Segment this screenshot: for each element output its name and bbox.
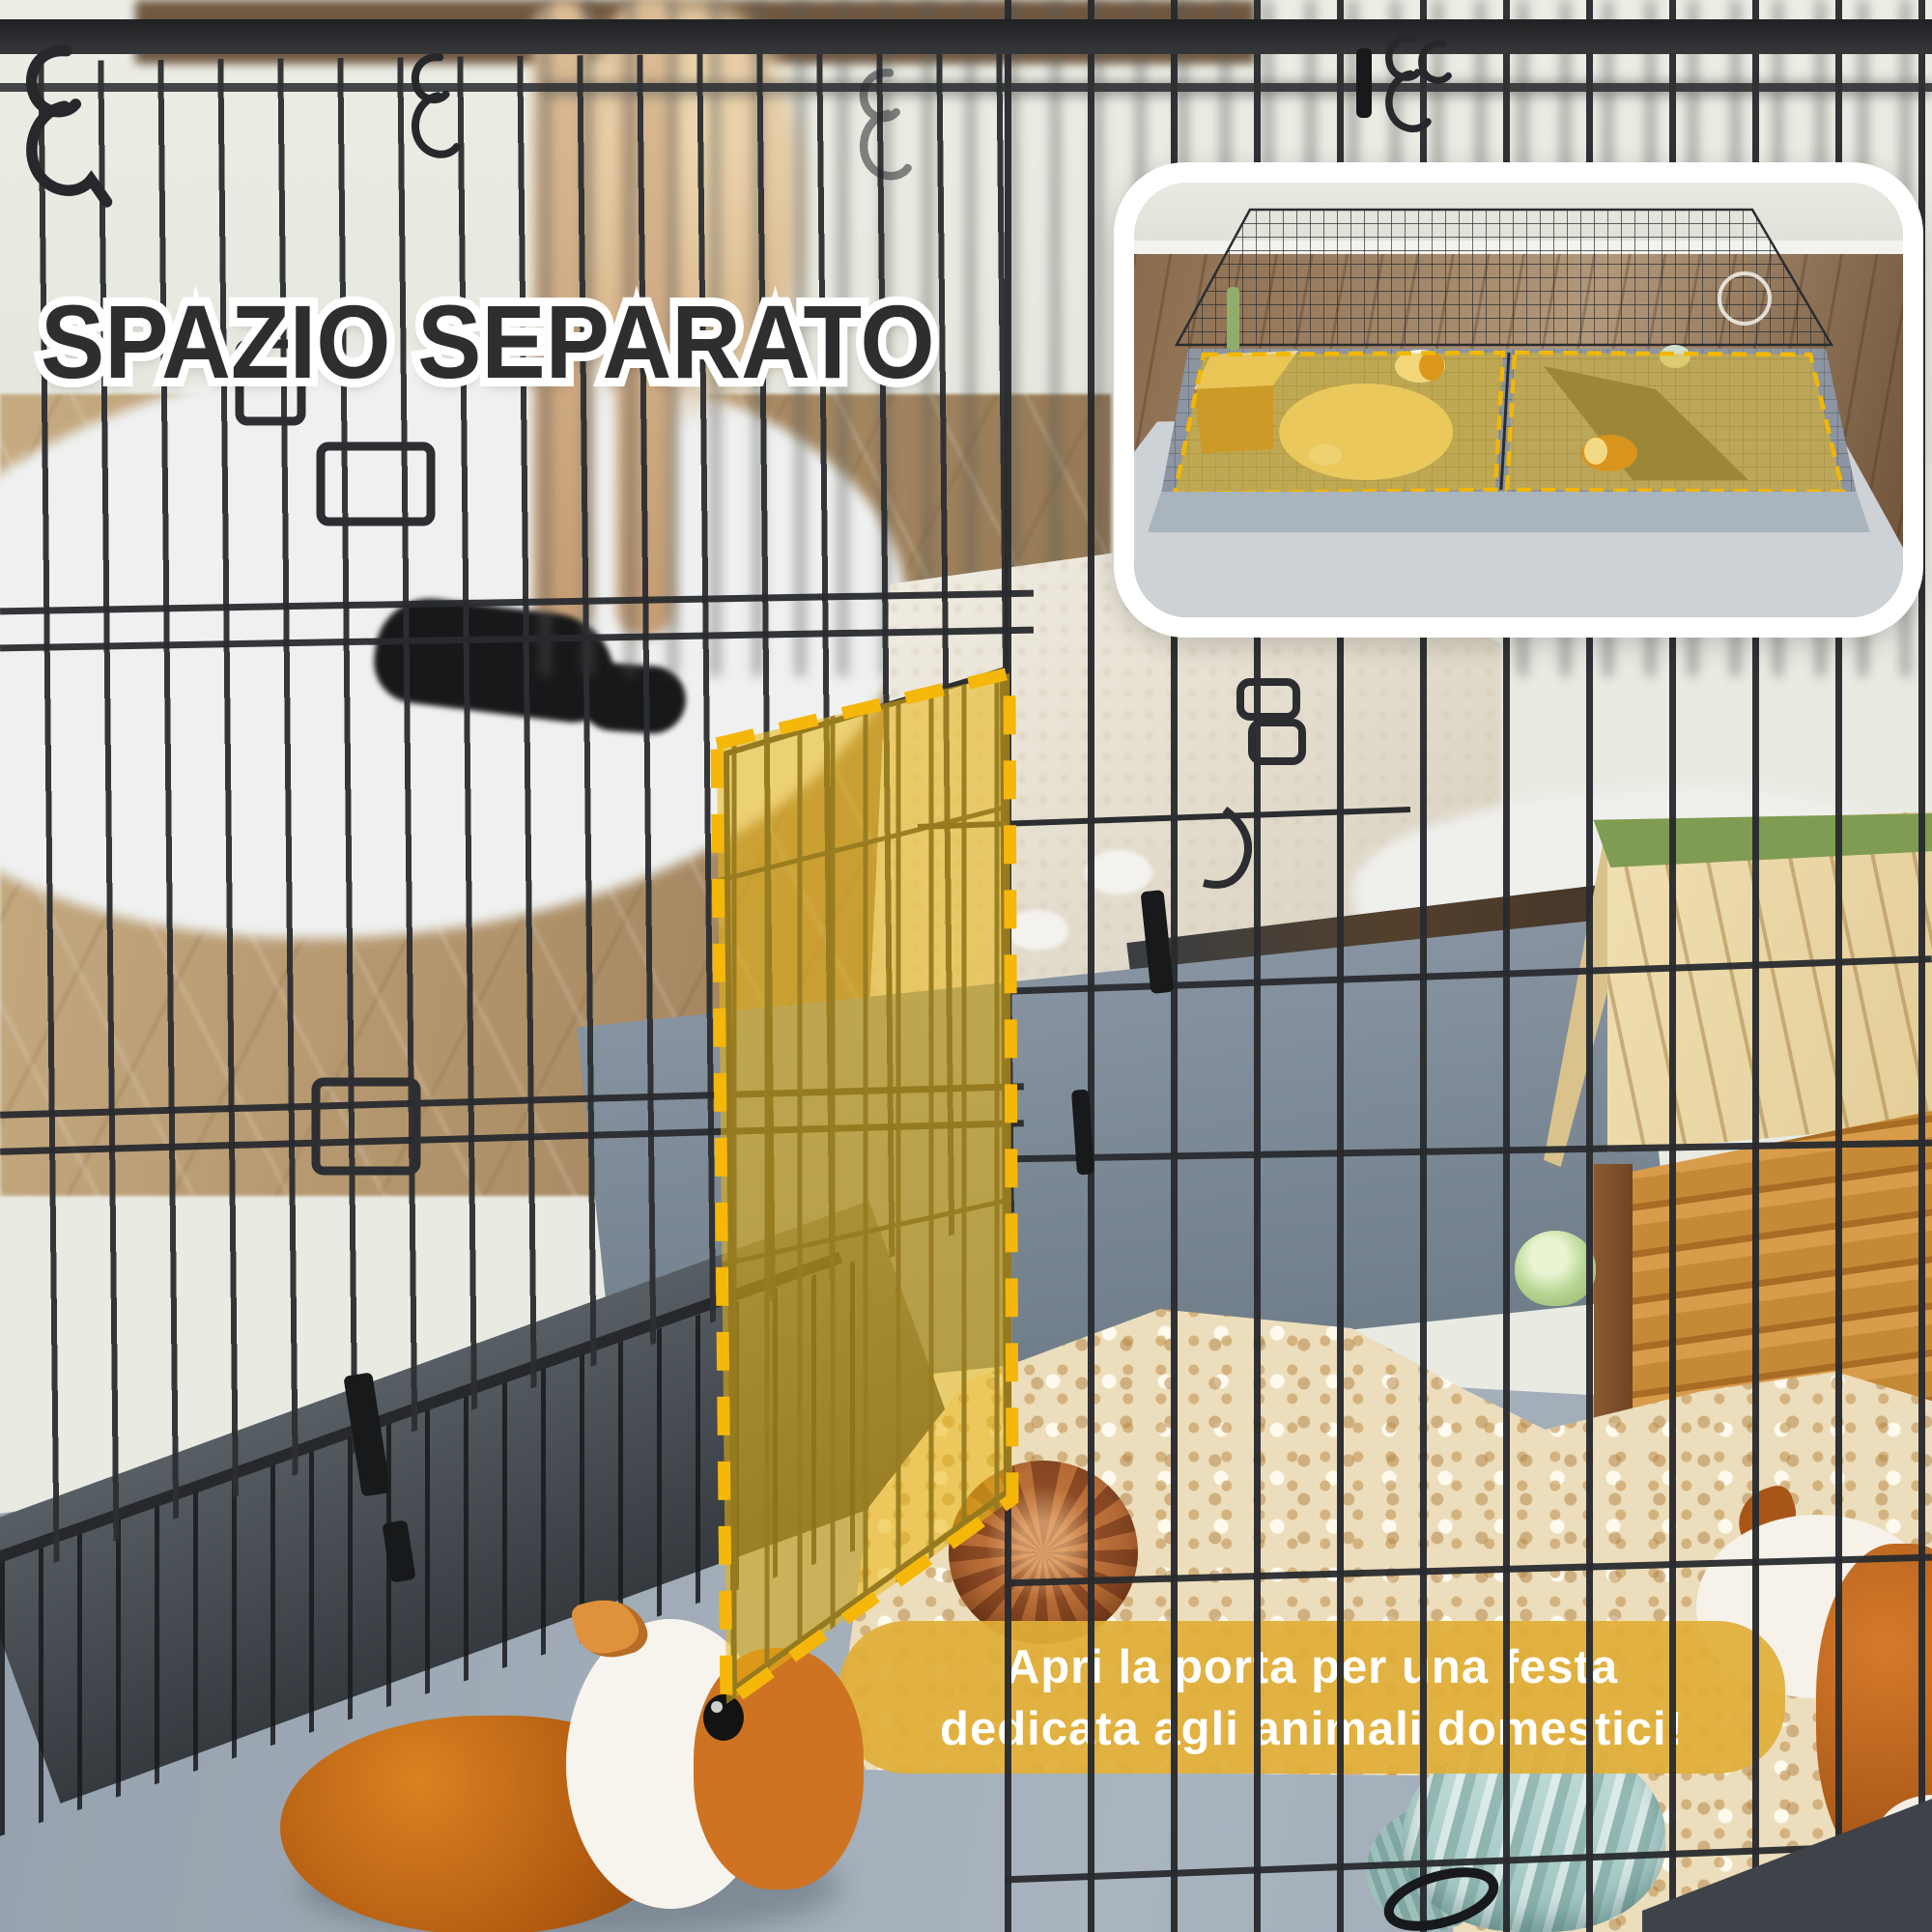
tray-wire-handle [1383, 1861, 1500, 1932]
inset-highlight-right-space [1507, 353, 1843, 492]
bottom-tray [1383, 1799, 1932, 1932]
inset-cage-graphic [1134, 183, 1903, 617]
inset-highlight-left-space [1175, 353, 1503, 494]
inset-top-view [1114, 162, 1923, 638]
door-highlight [717, 647, 1018, 1729]
inset-water-bottle-green [1227, 287, 1239, 351]
wire-loop-connectors [240, 344, 431, 1171]
door-highlight-overlay [717, 673, 1012, 1704]
headline-title: SPAZIO SEPARATO [41, 290, 1107, 406]
product-marketing-image: Apri la porta per una festa dedicata agl… [0, 0, 1932, 1932]
inset-tray-front [1148, 492, 1870, 532]
inset-photo [1134, 183, 1903, 617]
